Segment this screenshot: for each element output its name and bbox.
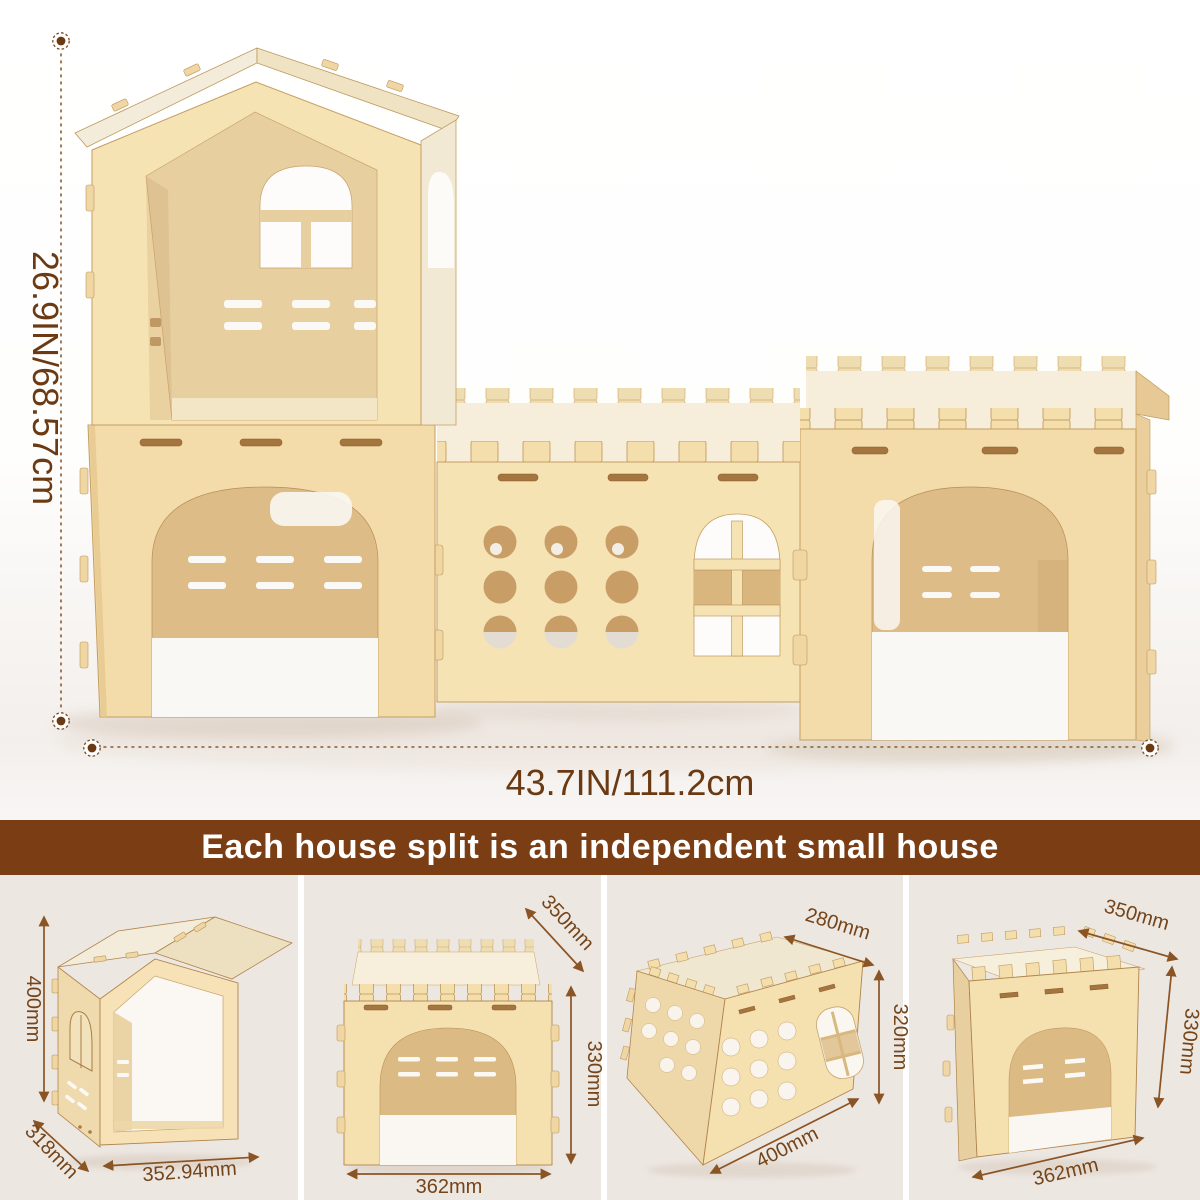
banner-text: Each house split is an independent small… <box>201 828 999 867</box>
paned-window <box>694 514 780 656</box>
castle-scene-illustration: 26.9IN/68.57cm 43.7IN/111.2cm <box>0 0 1200 820</box>
assembled-castle-photo: 26.9IN/68.57cm 43.7IN/111.2cm <box>0 0 1200 820</box>
panel2-width-label: 362mm <box>416 1176 483 1198</box>
split-houses-illustrations: 400mm 318mm 352.94mm <box>0 875 1200 1200</box>
product-dimension-infographic: 26.9IN/68.57cm 43.7IN/111.2cm Each house… <box>0 0 1200 1200</box>
vent-hole-grid <box>484 526 639 649</box>
height-dimension-label: 26.9IN/68.57cm <box>25 251 66 505</box>
castle-right-tower <box>800 356 1169 742</box>
castle-middle-section <box>429 388 807 702</box>
split-houses-panels: 400mm 318mm 352.94mm <box>0 875 1200 1200</box>
panel2-height-label: 330mm <box>583 1041 605 1108</box>
height-dimension: 26.9IN/68.57cm <box>25 33 69 729</box>
width-dimension-label: 43.7IN/111.2cm <box>506 762 755 803</box>
panel3-height-label: 320mm <box>889 1004 911 1071</box>
arched-window <box>260 166 352 268</box>
panel1-height-label: 400mm <box>22 976 44 1043</box>
gable-house-top <box>75 48 459 425</box>
castle-left-tower <box>80 406 435 717</box>
banner: Each house split is an independent small… <box>0 820 1200 875</box>
